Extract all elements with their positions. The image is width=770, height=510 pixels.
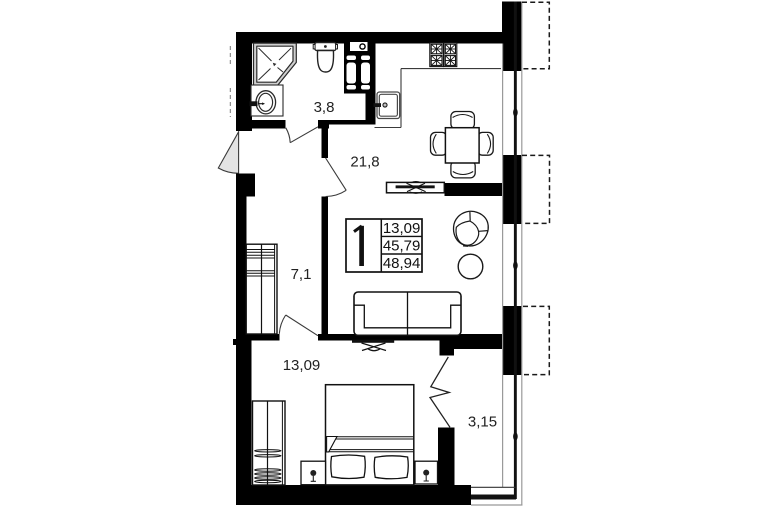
svg-text:45,79: 45,79 <box>383 237 421 254</box>
svg-text:7,1: 7,1 <box>291 266 312 283</box>
svg-text:21,8: 21,8 <box>350 154 379 171</box>
svg-text:13,09: 13,09 <box>383 220 421 237</box>
svg-text:3,8: 3,8 <box>314 99 335 116</box>
svg-text:48,94: 48,94 <box>383 255 421 272</box>
svg-text:13,09: 13,09 <box>283 357 321 374</box>
svg-text:3,15: 3,15 <box>468 414 497 431</box>
